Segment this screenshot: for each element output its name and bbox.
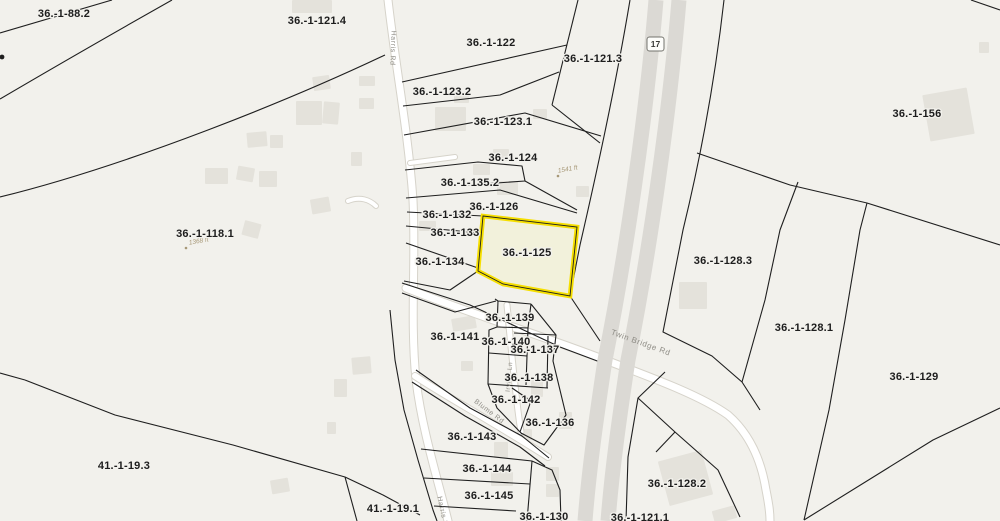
parcel-label: 36.-1-88.2 [38,8,90,20]
building-footprint [270,135,283,148]
parcel-label: 36.-1-123.2 [413,86,471,98]
parcel-boundary-line [697,153,1000,245]
parcel-boundary-line [656,432,675,452]
parcel-label: 36.-1-138 [505,372,554,384]
parcel-label: 36.-1-126 [470,201,519,213]
building-footprint [351,356,371,375]
parcel-label: 36.-1-143 [448,431,497,443]
parcel-label: 36.-1-130 [520,511,569,521]
parcel-label: 41.-1-19.3 [98,460,150,472]
building-footprint [359,76,375,86]
building-footprint [241,220,261,239]
parcel-label: 36.-1-134 [416,256,466,268]
building-footprint [712,505,738,521]
parcel-label: 36.-1-133 [431,227,480,239]
parcel-label: 41.-1-19.1 [367,503,419,515]
parcel-label: 36.-1-121.1 [611,512,669,521]
building-footprint [546,484,559,497]
building-footprint [351,152,362,166]
parcel-boundary-line [0,373,25,380]
building-footprint [292,0,332,13]
measurement-marker [185,247,188,250]
parcel-label: 36.-1-136 [526,417,575,429]
parcel-label: 36.-1-123.1 [474,116,532,128]
parcel-map[interactable]: Harris RdHarris RdTwin Bridge RdBlume Rd… [0,0,1000,521]
parcel-label: 36.-1-128.3 [694,255,752,267]
parcel-label: 36.-1-137 [511,344,560,356]
parcel-label: 36.-1-128.1 [775,322,833,334]
building-footprint [270,478,290,495]
parcel-boundary-line [742,182,798,382]
parcel-boundary-line [971,0,1000,10]
building-footprint [679,282,707,309]
parcel-boundary-line [25,380,420,515]
parcel-boundary-line [495,299,531,304]
building-footprint [494,442,508,458]
parcel-label: 36.-1-129 [890,371,939,383]
building-footprint [205,168,228,184]
building-footprint [322,101,340,124]
parcel-label: 36.-1-139 [486,312,535,324]
parcel-boundary-line [345,477,357,521]
parcel-label: 36.-1-156 [893,108,942,120]
parcel-map-canvas: Harris RdHarris RdTwin Bridge RdBlume Rd… [0,0,1000,521]
parcel-boundary-line [804,408,1000,520]
parcel-boundary-line [804,203,867,520]
building-footprint [259,171,277,187]
parcel-label: 36.-1-135.2 [441,177,499,189]
parcel-boundary-line [552,105,600,143]
parcel-label: 36.-1-121.4 [288,15,347,27]
parcel-label: 36.-1-122 [467,37,516,49]
building-footprint [979,42,989,53]
parcel-label: 36.-1-121.3 [564,53,622,65]
road-label: Harris Rd [388,30,396,65]
building-footprint [461,361,473,371]
building-footprint [310,196,331,214]
building-footprint [296,101,322,125]
parcel-label: 36.-1-132 [423,209,472,221]
parcel-label: 36.-1-145 [465,490,514,502]
building-footprint [246,131,267,148]
parcel-boundary-line [626,372,665,521]
measurement-label: 1541 ft [557,164,579,175]
building-footprint [435,107,466,131]
parcel-label: 36.-1-141 [431,331,480,343]
parcel-label: 36.-1-124 [489,152,539,164]
parcel-label: 36.-1-118.1 [176,228,234,240]
parcel-boundary-line [421,449,532,461]
building-footprint [576,186,589,197]
route-17-shield: 17 [647,37,664,51]
parcel-boundary-line [402,45,567,82]
building-footprint [546,467,559,481]
building-footprint [236,166,255,183]
survey-point-dot [0,55,4,60]
parcel-label: 36.-1-142 [492,394,541,406]
route-shield-number: 17 [651,39,661,49]
measurement-marker [557,175,560,178]
building-footprint [334,379,347,397]
building-footprint [312,75,331,91]
building-footprint [327,422,336,434]
building-footprint [473,164,490,175]
parcel-label: 36.-1-128.2 [648,478,706,490]
parcel-label: 36.-1-144 [463,463,513,475]
building-footprint [359,98,374,109]
parcel-label: 36.-1-125 [503,247,552,259]
